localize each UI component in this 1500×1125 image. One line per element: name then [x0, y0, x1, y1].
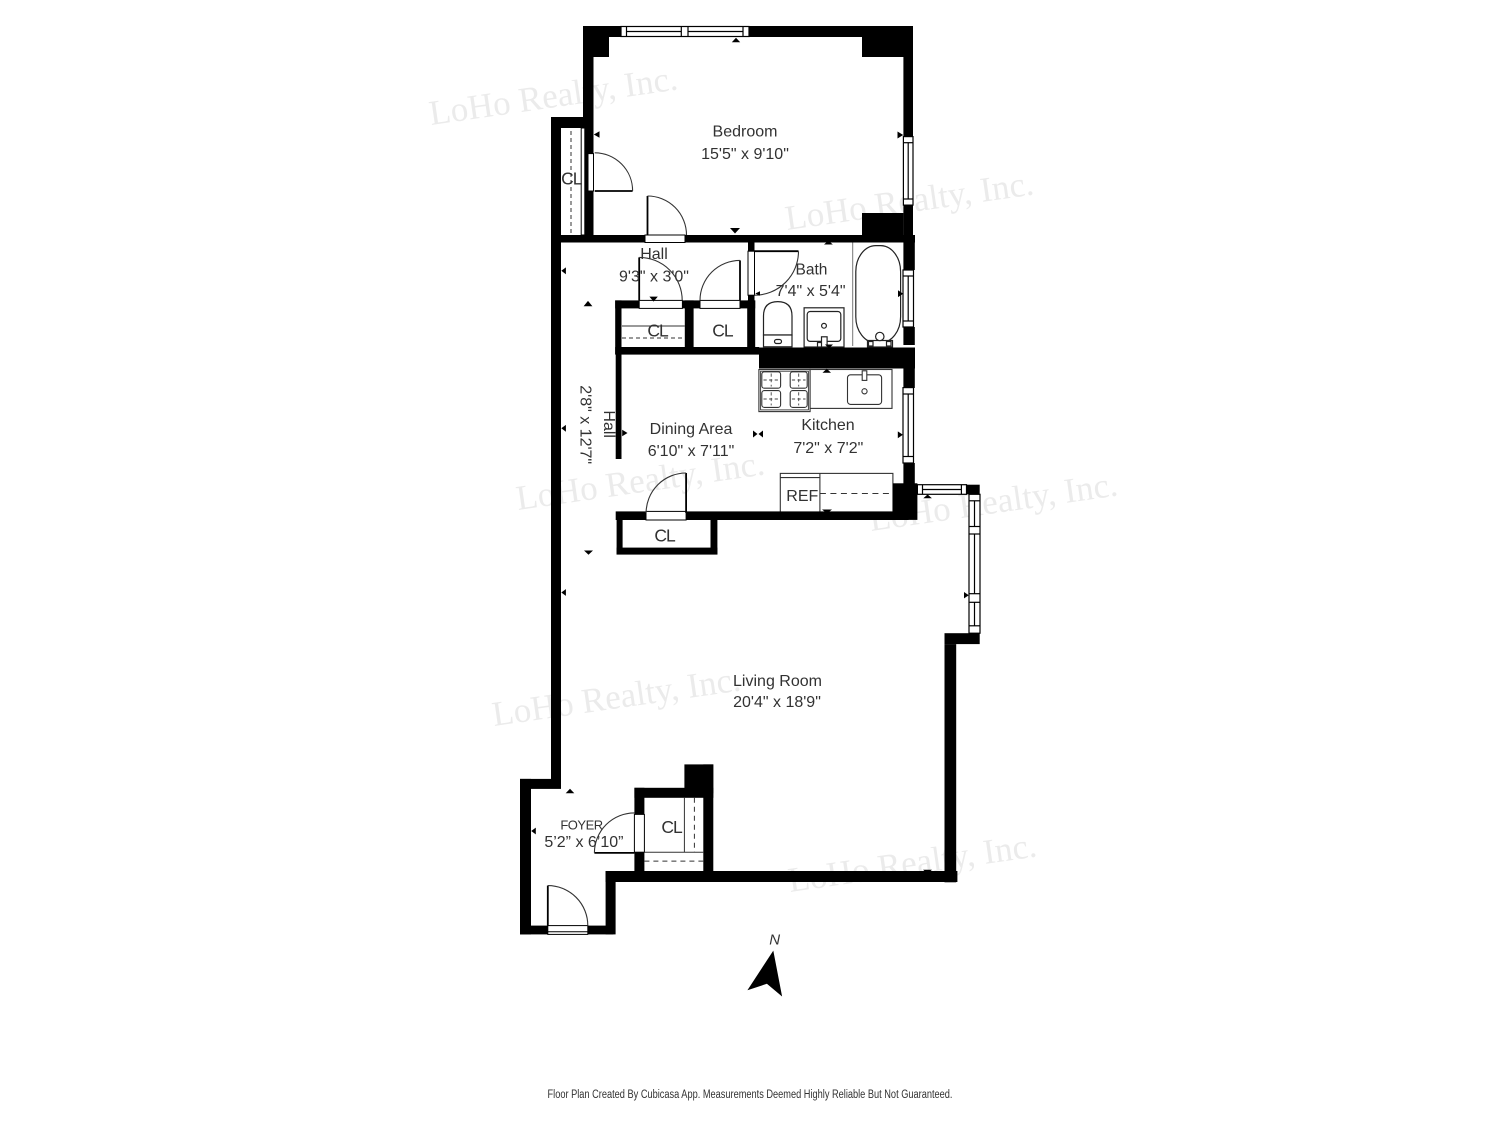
svg-text:Living Room: Living Room [733, 673, 822, 690]
svg-text:9'3" x 3'0": 9'3" x 3'0" [619, 269, 689, 286]
svg-text:Dining Area: Dining Area [650, 421, 733, 438]
svg-text:15'5" x 9'10": 15'5" x 9'10" [701, 146, 789, 163]
svg-text:Bedroom: Bedroom [713, 124, 778, 141]
svg-text:N: N [769, 932, 780, 949]
svg-text:Hall: Hall [640, 246, 668, 263]
svg-text:CL: CL [712, 321, 734, 341]
svg-text:FOYER: FOYER [560, 818, 602, 833]
svg-text:7'4" x 5'4": 7'4" x 5'4" [776, 283, 846, 300]
svg-text:2'8" x 12'7": 2'8" x 12'7" [577, 385, 594, 464]
svg-text:REF: REF [786, 488, 818, 505]
svg-text:5’2” x 6’10”: 5’2” x 6’10” [544, 834, 623, 851]
svg-text:6'10" x 7'11": 6'10" x 7'11" [648, 443, 735, 460]
svg-text:20'4" x 18'9": 20'4" x 18'9" [733, 694, 821, 711]
svg-text:CL: CL [647, 321, 669, 341]
svg-text:7'2" x 7'2": 7'2" x 7'2" [793, 440, 863, 457]
svg-text:Hall: Hall [600, 410, 617, 438]
svg-text:Bath: Bath [796, 262, 828, 279]
svg-text:CL: CL [661, 817, 683, 837]
svg-text:Floor Plan Created By Cubicasa: Floor Plan Created By Cubicasa App. Meas… [548, 1088, 953, 1101]
svg-text:CL: CL [654, 526, 676, 546]
svg-text:Kitchen: Kitchen [801, 417, 854, 434]
svg-text:CL: CL [561, 169, 583, 189]
